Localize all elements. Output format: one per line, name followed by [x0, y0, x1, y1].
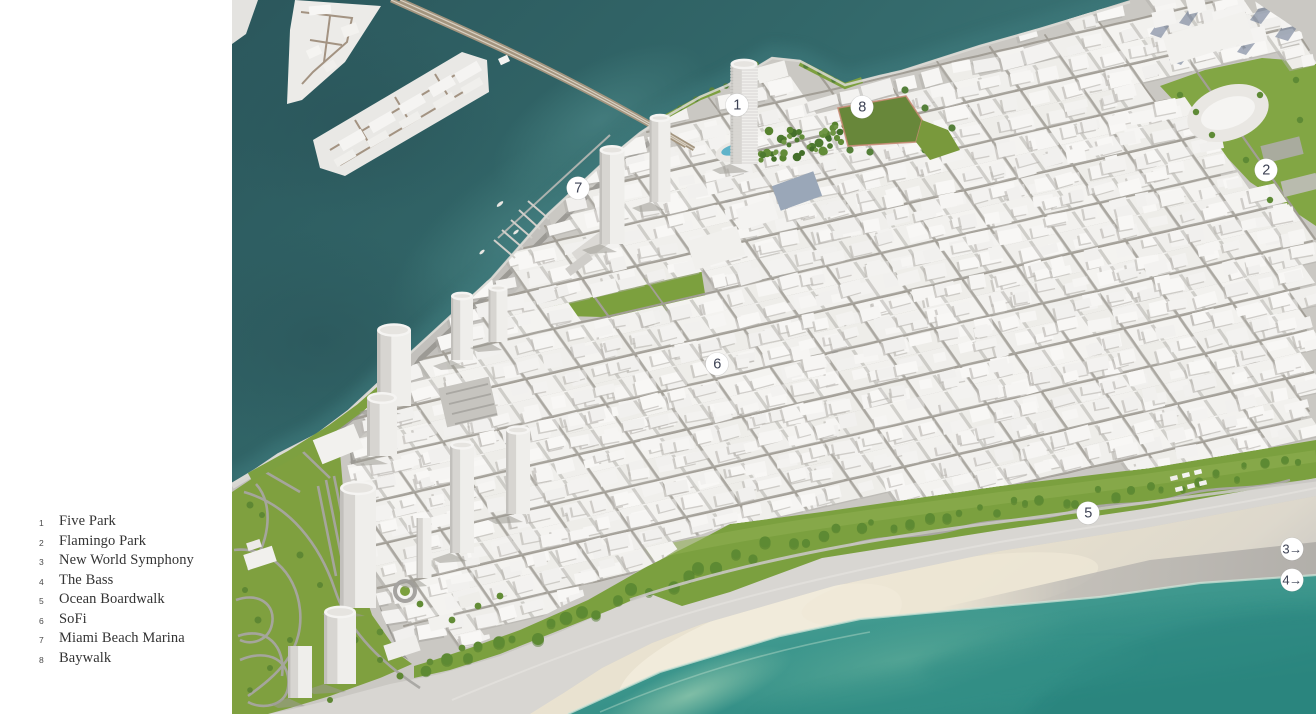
svg-text:8: 8	[858, 99, 866, 115]
svg-text:4→: 4→	[1282, 572, 1301, 587]
svg-text:1: 1	[733, 97, 741, 113]
svg-text:7: 7	[574, 180, 582, 196]
svg-text:3→: 3→	[1282, 541, 1301, 556]
svg-text:2: 2	[1262, 162, 1270, 178]
svg-text:5: 5	[1084, 505, 1092, 521]
svg-text:6: 6	[713, 356, 721, 372]
